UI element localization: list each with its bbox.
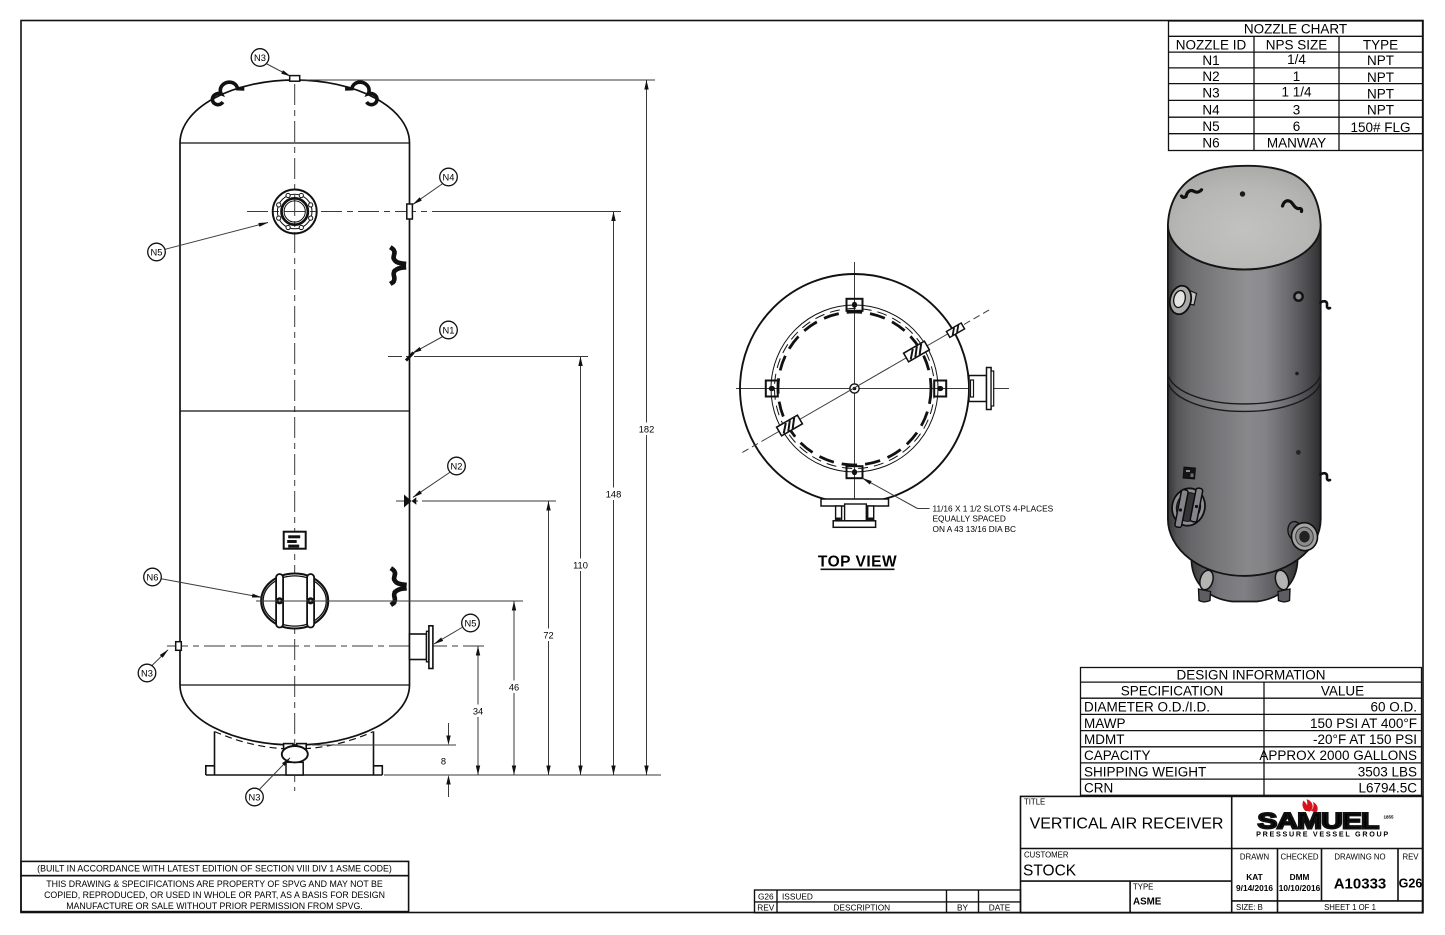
svg-text:N3: N3 [249,792,261,802]
svg-text:MAWP: MAWP [1084,716,1126,731]
svg-text:1: 1 [1293,69,1301,84]
svg-text:11/16 X 1 1/2 SLOTS 4-PLACES: 11/16 X 1 1/2 SLOTS 4-PLACES [933,504,1054,514]
svg-text:N6: N6 [1202,136,1219,151]
svg-text:NPT: NPT [1367,70,1394,85]
svg-text:9/14/2016: 9/14/2016 [1236,883,1273,893]
svg-text:N1: N1 [1202,53,1219,68]
svg-text:110: 110 [573,561,588,571]
svg-text:N5: N5 [151,247,163,257]
svg-text:N2: N2 [451,461,463,471]
svg-text:CRN: CRN [1084,781,1113,796]
svg-text:ON A 43 13/16 DIA BC: ON A 43 13/16 DIA BC [933,524,1016,534]
svg-text:MANWAY: MANWAY [1267,136,1326,151]
svg-text:NPT: NPT [1367,102,1394,117]
svg-text:G26: G26 [1399,877,1423,891]
svg-text:COPIED, REPRODUCED, OR USED IN: COPIED, REPRODUCED, OR USED IN WHOLE OR … [44,890,385,900]
svg-text:PRESSURE VESSEL GROUP: PRESSURE VESSEL GROUP [1256,830,1390,839]
svg-text:(BUILT IN ACCORDANCE WITH LATE: (BUILT IN ACCORDANCE WITH LATEST EDITION… [37,864,392,874]
svg-text:8: 8 [441,756,446,766]
svg-text:G26: G26 [758,892,774,902]
svg-text:NOZZLE ID: NOZZLE ID [1176,37,1247,52]
svg-text:N3: N3 [254,53,266,63]
svg-text:CHECKED: CHECKED [1280,853,1318,862]
svg-text:N1: N1 [443,325,455,335]
svg-text:VALUE: VALUE [1321,683,1364,698]
svg-text:BY: BY [957,903,969,913]
svg-text:NOZZLE CHART: NOZZLE CHART [1244,22,1347,37]
svg-text:46: 46 [509,683,519,693]
svg-text:60 O.D.: 60 O.D. [1370,700,1417,715]
svg-text:3: 3 [1293,102,1301,117]
svg-text:N3: N3 [141,668,153,678]
svg-text:ASME: ASME [1133,897,1162,908]
svg-text:NPS SIZE: NPS SIZE [1266,37,1328,52]
svg-text:DESIGN INFORMATION: DESIGN INFORMATION [1176,667,1325,682]
svg-text:TITLE: TITLE [1024,798,1045,807]
svg-text:TOP VIEW: TOP VIEW [818,554,897,571]
svg-text:DRAWN: DRAWN [1240,853,1269,862]
svg-text:DATE: DATE [989,903,1011,913]
svg-text:SIZE: B: SIZE: B [1236,903,1263,912]
svg-text:-20°F AT 150 PSI: -20°F AT 150 PSI [1313,732,1417,747]
svg-text:DRAWING NO: DRAWING NO [1334,853,1385,862]
svg-text:L6794.5C: L6794.5C [1358,781,1417,796]
svg-text:10/10/2016: 10/10/2016 [1279,883,1321,893]
svg-text:MDMT: MDMT [1084,732,1125,747]
svg-text:REV: REV [757,903,775,913]
svg-text:KAT: KAT [1246,872,1262,882]
svg-text:150# FLG: 150# FLG [1350,120,1410,135]
svg-text:THIS DRAWING & SPECIFICATIONS: THIS DRAWING & SPECIFICATIONS ARE PROPER… [46,879,383,889]
svg-text:NPT: NPT [1367,87,1394,102]
svg-text:VERTICAL AIR RECEIVER: VERTICAL AIR RECEIVER [1030,816,1224,833]
svg-text:N2: N2 [1202,69,1219,84]
svg-text:STOCK: STOCK [1023,863,1077,880]
svg-text:N5: N5 [465,618,477,628]
svg-text:6: 6 [1293,119,1301,134]
svg-text:N4: N4 [443,172,455,182]
svg-text:A10333: A10333 [1334,876,1387,893]
svg-text:EQUALLY SPACED: EQUALLY SPACED [933,514,1006,524]
svg-text:SHEET 1 OF 1: SHEET 1 OF 1 [1324,903,1376,912]
svg-text:ISSUED: ISSUED [782,892,813,902]
svg-text:SPECIFICATION: SPECIFICATION [1121,683,1224,698]
svg-text:MANUFACTURE OR SALE WITHOUT PR: MANUFACTURE OR SALE WITHOUT PRIOR PERMIS… [66,901,363,911]
svg-text:CUSTOMER: CUSTOMER [1024,851,1069,860]
svg-text:3503 LBS: 3503 LBS [1358,764,1417,779]
svg-text:DIAMETER O.D./I.D.: DIAMETER O.D./I.D. [1084,700,1210,715]
svg-text:TYPE: TYPE [1363,37,1398,52]
svg-text:34: 34 [473,707,483,717]
svg-text:NPT: NPT [1367,53,1394,68]
svg-text:182: 182 [639,425,655,435]
svg-text:N5: N5 [1202,119,1219,134]
svg-text:N4: N4 [1202,102,1220,117]
svg-text:APPROX 2000 GALLONS: APPROX 2000 GALLONS [1259,748,1417,763]
svg-text:REV: REV [1402,853,1419,862]
svg-text:DESCRIPTION: DESCRIPTION [833,903,890,913]
svg-text:1855: 1855 [1384,815,1395,820]
svg-text:72: 72 [543,631,553,641]
svg-text:DMM: DMM [1290,872,1310,882]
svg-text:SHIPPING WEIGHT: SHIPPING WEIGHT [1084,764,1206,779]
svg-text:CAPACITY: CAPACITY [1084,748,1151,763]
svg-text:TYPE: TYPE [1133,883,1153,892]
svg-text:1/4: 1/4 [1287,52,1306,67]
svg-text:148: 148 [606,490,622,500]
svg-text:N6: N6 [147,572,159,582]
svg-text:1 1/4: 1 1/4 [1281,85,1312,100]
svg-text:150 PSI AT 400°F: 150 PSI AT 400°F [1310,716,1417,731]
svg-text:N3: N3 [1202,86,1219,101]
